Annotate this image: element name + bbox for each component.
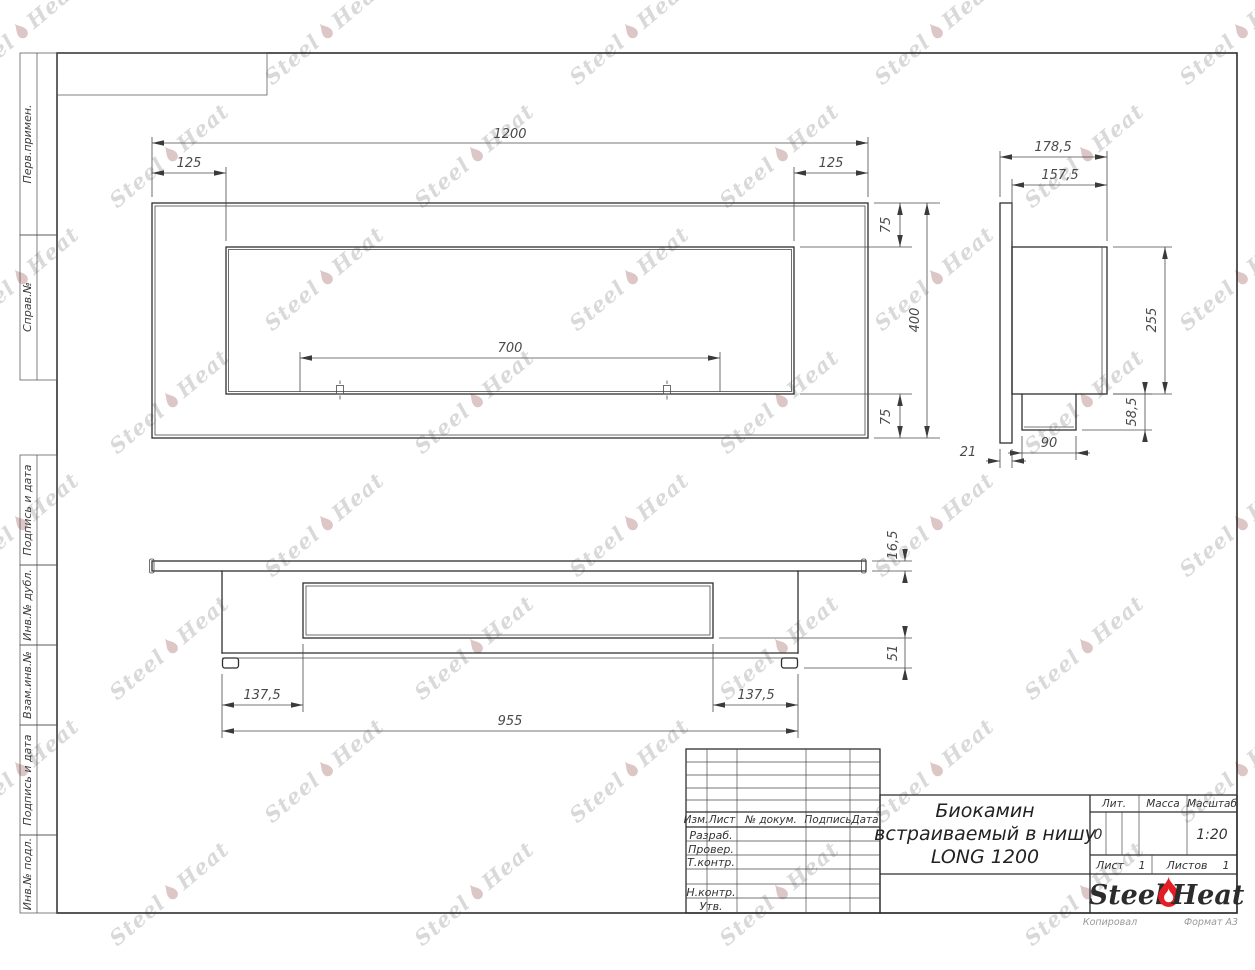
foot-right bbox=[782, 658, 798, 668]
dim-side-flange: 21 bbox=[960, 445, 977, 460]
dim-front-top: 75 bbox=[879, 217, 894, 234]
dim-side-tray-width: 90 bbox=[1041, 436, 1058, 451]
left-margin-stamps: Перв.примен. Справ.№ Подпись и дата Инв.… bbox=[20, 53, 57, 913]
logo-steel-text: Steel bbox=[1089, 880, 1166, 911]
stamp-label-vzam-inv: Взам.инв.№ bbox=[21, 651, 34, 719]
dim-bottom-flange-thickness: 16,5 bbox=[886, 531, 901, 560]
tb-header-podpis: Подпись bbox=[804, 814, 851, 826]
tb-lit-label: Лит. bbox=[1101, 798, 1126, 810]
tb-header-list: Лист bbox=[708, 814, 736, 826]
dim-front-bottom: 75 bbox=[879, 409, 894, 426]
side-view bbox=[1000, 203, 1107, 443]
tb-row-tkontr: Т.контр. bbox=[687, 856, 735, 869]
doc-title-line2: встраиваемый в нишу bbox=[874, 823, 1096, 845]
tb-sheet-label: Лист bbox=[1095, 859, 1124, 872]
bottom-view bbox=[150, 559, 867, 668]
drawing-svg: Перв.примен. Справ.№ Подпись и дата Инв.… bbox=[0, 0, 1255, 970]
stamp-label-inv-dubl: Инв.№ дубл. bbox=[21, 569, 34, 641]
tb-row-razrab: Разраб. bbox=[689, 829, 732, 842]
stamp-label-podpis-data: Подпись и дата bbox=[21, 464, 34, 555]
dim-side-body-height: 255 bbox=[1145, 308, 1160, 333]
dim-bottom-body-width: 955 bbox=[498, 714, 523, 729]
dim-front-offset-left: 125 bbox=[177, 156, 202, 171]
dim-front-height: 400 bbox=[908, 308, 923, 333]
steelheat-logo: Steel Heat bbox=[1089, 877, 1245, 911]
tb-mass-label: Масса bbox=[1146, 798, 1179, 810]
tb-lit-value: 0 bbox=[1094, 827, 1103, 843]
copied-label: Копировал bbox=[1083, 917, 1137, 928]
dim-front-width: 1200 bbox=[493, 127, 526, 142]
tb-sheets-value: 1 bbox=[1223, 859, 1230, 872]
logo-heat-text: Heat bbox=[1171, 880, 1245, 911]
stamp-label-podpis-data-2: Подпись и дата bbox=[21, 734, 34, 825]
dim-front-offset-right: 125 bbox=[819, 156, 844, 171]
doc-title-line3: LONG 1200 bbox=[931, 846, 1039, 868]
dim-side-body-depth: 157,5 bbox=[1041, 168, 1078, 183]
stamp-label-sprav-no: Справ.№ bbox=[21, 282, 34, 332]
front-view bbox=[152, 203, 868, 438]
stamp-label-perv-primen: Перв.примен. bbox=[21, 104, 34, 183]
side-view-dimensions: 178,5 157,5 255 58,5 90 bbox=[960, 140, 1172, 468]
drawing-sheet: SteelHeatSteelHeatSteelHeatSteelHeatStee… bbox=[0, 0, 1255, 970]
burner-clip-right bbox=[664, 381, 671, 400]
format-label: Формат А3 bbox=[1184, 917, 1238, 928]
tb-scale-value: 1:20 bbox=[1196, 827, 1228, 843]
tb-row-prover: Провер. bbox=[688, 843, 734, 856]
dim-side-tray-drop: 58,5 bbox=[1125, 398, 1140, 427]
dim-bottom-offset-left: 137,5 bbox=[243, 688, 280, 703]
tb-row-utv: Утв. bbox=[699, 900, 722, 913]
top-left-stamp-box bbox=[57, 53, 267, 95]
tb-scale-label: Масштаб bbox=[1187, 798, 1237, 810]
dim-front-burner: 700 bbox=[498, 341, 523, 356]
doc-title-line1: Биокамин bbox=[935, 800, 1034, 822]
tb-header-izm: Изм. bbox=[684, 814, 709, 826]
title-block: Изм. Лист № докум. Подпись Дата Разраб. … bbox=[684, 749, 1245, 928]
dim-bottom-offset-right: 137,5 bbox=[737, 688, 774, 703]
tb-row-nkontr: Н.контр. bbox=[686, 886, 735, 899]
dim-side-depth: 178,5 bbox=[1034, 140, 1071, 155]
dim-bottom-base-height: 51 bbox=[886, 645, 901, 662]
tb-sheets-label: Листов bbox=[1165, 859, 1207, 872]
stamp-label-inv-podl: Инв.№ подл. bbox=[21, 838, 34, 910]
tb-header-dokum: № докум. bbox=[744, 814, 797, 826]
tb-sheet-value: 1 bbox=[1139, 859, 1146, 872]
burner-clip-left bbox=[337, 381, 344, 400]
foot-left bbox=[223, 658, 239, 668]
